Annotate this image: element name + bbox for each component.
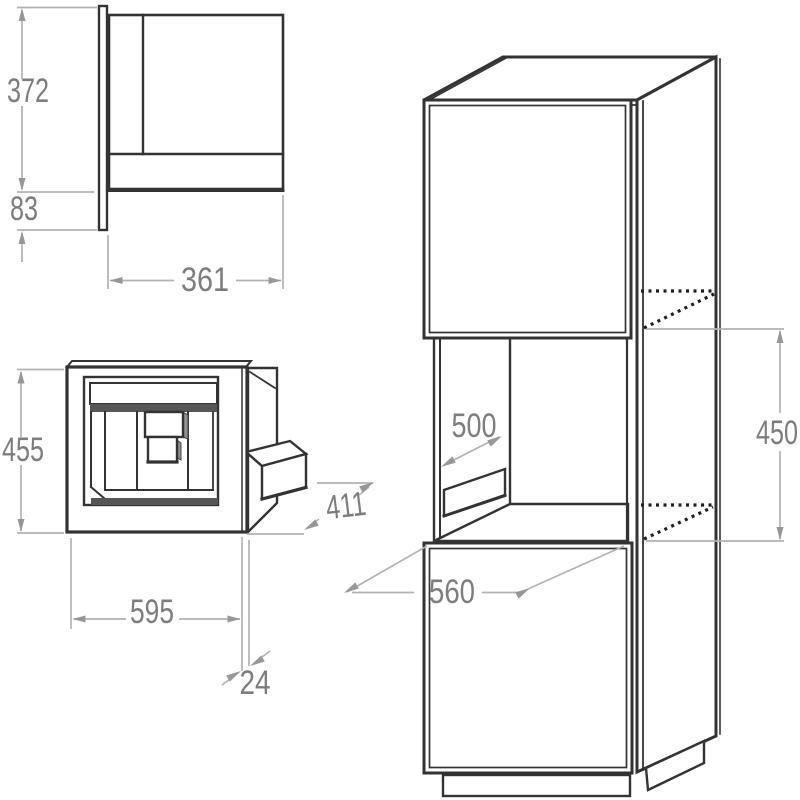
- arrowhead-right: [228, 616, 241, 623]
- dim-label-372: 372: [7, 72, 49, 110]
- display-shade-bar: [90, 404, 217, 412]
- dim-label-411: 411: [324, 485, 368, 528]
- arrowhead-up: [19, 8, 26, 21]
- cabinet-side-face: [637, 57, 716, 772]
- arrowhead-down-left: [441, 456, 456, 467]
- dim-label-560: 560: [429, 573, 475, 611]
- installation-drawing: 372 83 361: [0, 0, 800, 800]
- dimension-500: 500: [441, 407, 502, 467]
- door-panel-side: [99, 6, 107, 230]
- dim-label-450: 450: [756, 414, 798, 452]
- arrowhead-down-left: [344, 582, 359, 593]
- arrowhead-left: [110, 277, 123, 284]
- dim-label-500: 500: [452, 407, 497, 445]
- spout-upper-block: [145, 412, 183, 437]
- dimension-24: 24: [222, 651, 271, 702]
- plinth-front: [443, 775, 630, 796]
- side-view: 372 83 361: [7, 6, 283, 299]
- dim-label-83: 83: [10, 190, 38, 228]
- tray-shade-bar: [91, 498, 218, 505]
- arrowhead-up: [777, 330, 784, 343]
- arrowhead-up: [19, 231, 26, 244]
- dimension-83: 83: [10, 190, 97, 262]
- arrowhead-up: [18, 371, 25, 384]
- arrowhead-right: [269, 277, 282, 284]
- drawing-canvas: 372 83 361: [0, 0, 800, 800]
- arrowhead-left: [73, 616, 86, 623]
- appliance-body-side: [109, 15, 283, 189]
- spout-lower-block: [148, 437, 177, 462]
- side-wall-slot: [444, 469, 505, 516]
- dim-label-361: 361: [181, 261, 229, 299]
- dimension-595: 595: [71, 537, 249, 671]
- upper-door: [424, 100, 631, 338]
- arrowhead-down: [777, 527, 784, 540]
- dim-label-455: 455: [2, 431, 44, 469]
- dimension-455: 455: [2, 370, 64, 534]
- dimension-line: [347, 546, 427, 592]
- dim-label-24: 24: [240, 664, 271, 702]
- dimension-372: 372: [7, 8, 97, 193]
- dim-label-595: 595: [130, 593, 174, 631]
- front-view: 455 595 24 411: [2, 361, 374, 702]
- arrowhead-down: [18, 519, 25, 532]
- dimension-361: 361: [108, 195, 283, 299]
- cabinet-view: 500 450 560: [344, 57, 798, 796]
